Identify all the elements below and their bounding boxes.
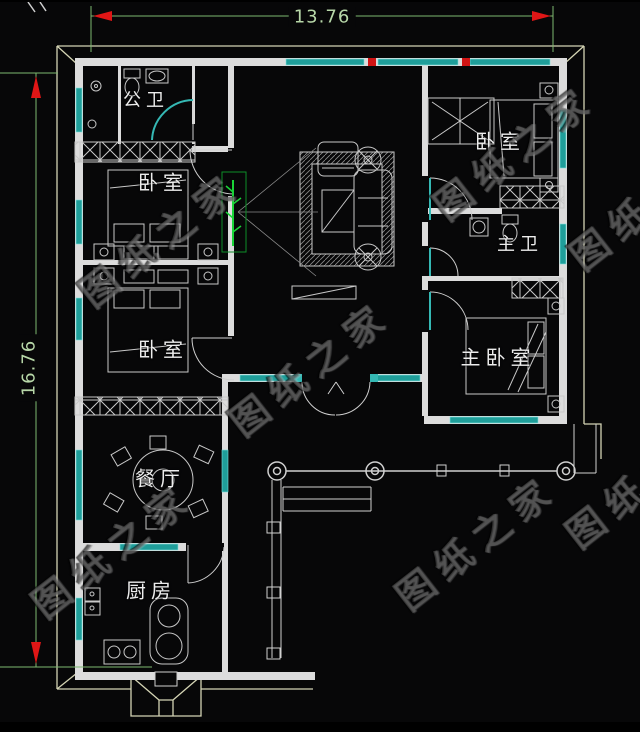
room-label-master-bath: 主卫 — [497, 230, 543, 256]
dimension-label-left: 16.76 — [19, 335, 40, 402]
dimension-label-top: 13.76 — [289, 7, 356, 28]
path-railing — [267, 480, 281, 659]
room-label-bedroom-left-2: 卧室 — [138, 334, 188, 363]
terrace-steps — [283, 487, 371, 511]
room-label-kitchen: 厨房 — [126, 575, 176, 604]
top-letterbox — [0, 0, 640, 2]
master-bath-door-arc — [430, 248, 458, 276]
tv-console — [292, 286, 356, 299]
room-label-master-bedroom: 主卧室 — [461, 342, 536, 371]
bedroom2-door — [192, 338, 234, 380]
sofa-set — [300, 142, 394, 266]
terrace-right-pier — [574, 424, 596, 473]
bottom-letterbox — [0, 722, 640, 732]
corner-marks — [28, 2, 46, 12]
floor-plan-canvas: 13.76 16.76 公卫 卧室 卧室 卧室 主卫 主卧室 餐厅 厨房 图纸之… — [0, 0, 640, 732]
master-bedroom-door-arc — [430, 292, 468, 330]
room-label-public-bath: 公卫 — [123, 86, 169, 112]
